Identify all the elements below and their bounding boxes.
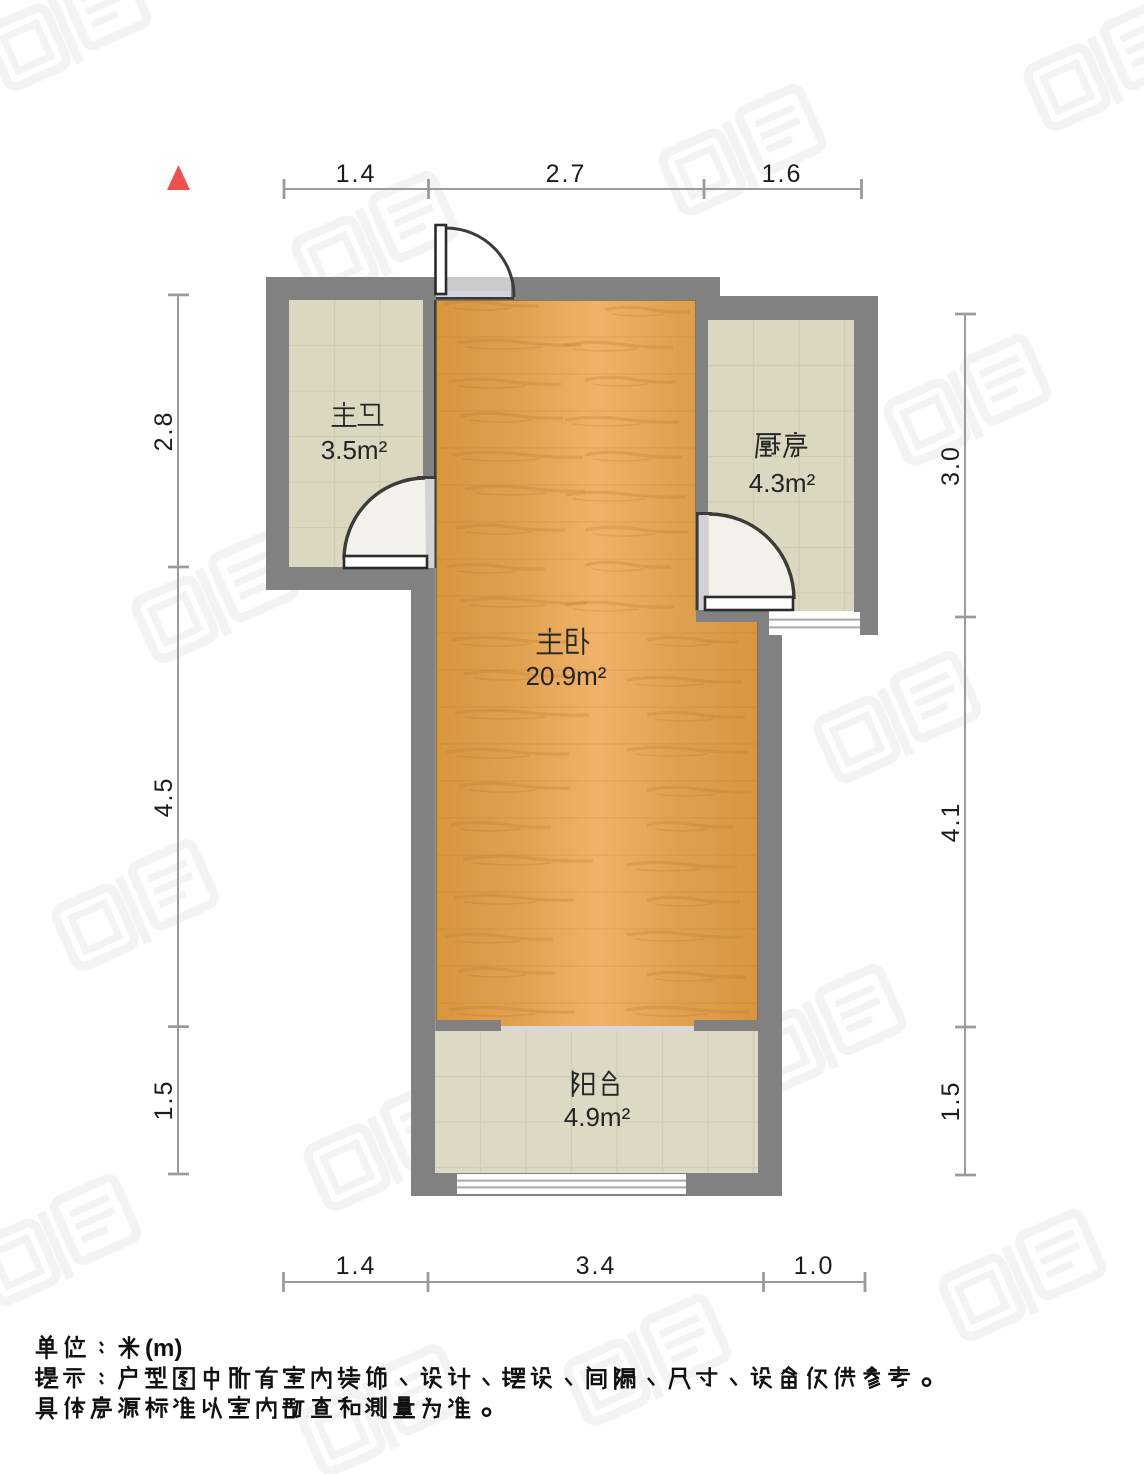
svg-text:3.0: 3.0 <box>937 445 965 486</box>
svg-text:4.9m²: 4.9m² <box>564 1102 631 1132</box>
svg-text:4.5: 4.5 <box>150 777 178 818</box>
svg-text:3.4: 3.4 <box>576 1252 617 1280</box>
svg-text:(m): (m) <box>145 1335 182 1362</box>
svg-text:2.8: 2.8 <box>150 411 178 452</box>
svg-text:1.5: 1.5 <box>937 1081 965 1122</box>
svg-text:1.0: 1.0 <box>794 1252 835 1280</box>
svg-text:20.9m²: 20.9m² <box>526 661 607 691</box>
svg-text:1.4: 1.4 <box>336 1252 377 1280</box>
svg-text:1.6: 1.6 <box>762 160 803 188</box>
svg-text:1.4: 1.4 <box>336 160 377 188</box>
svg-text:2.7: 2.7 <box>546 160 587 188</box>
svg-text:3.5m²: 3.5m² <box>321 435 388 465</box>
svg-text:4.3m²: 4.3m² <box>749 468 816 498</box>
svg-text:1.5: 1.5 <box>150 1080 178 1121</box>
svg-text:4.1: 4.1 <box>937 802 965 843</box>
